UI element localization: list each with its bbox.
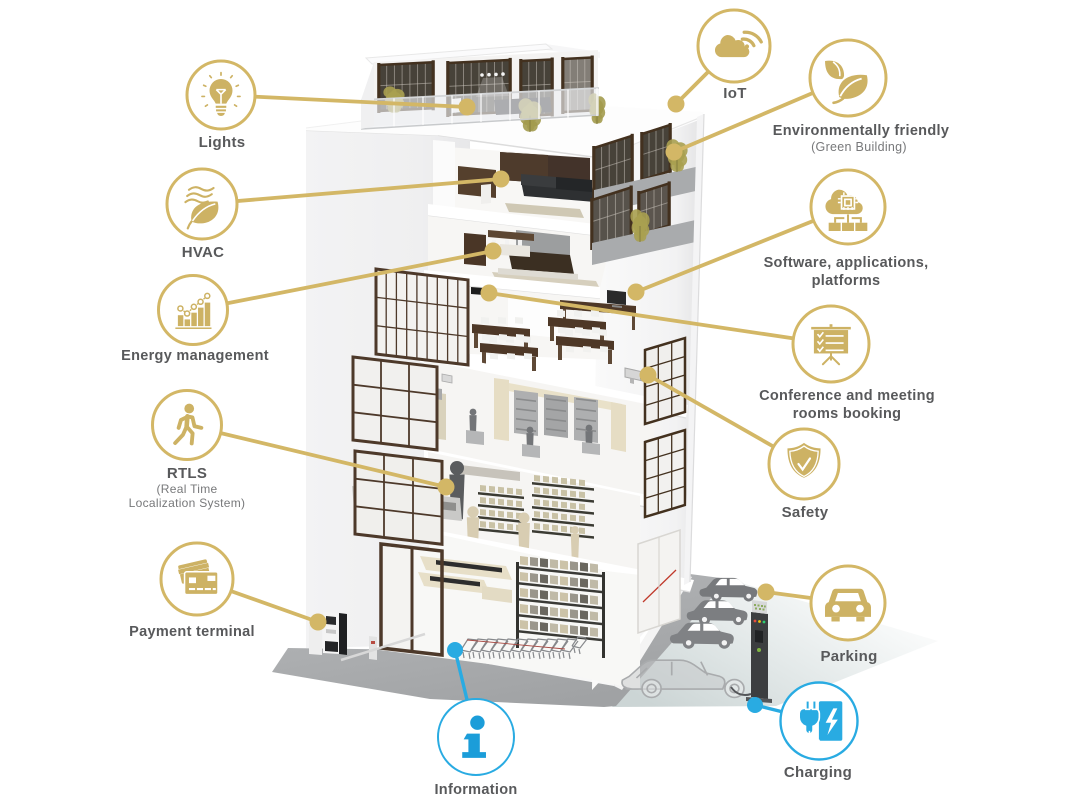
svg-text:HVAC: HVAC: [182, 244, 225, 261]
svg-text:Energy management: Energy management: [121, 348, 269, 364]
svg-text:rooms booking: rooms booking: [793, 406, 902, 422]
svg-text:Lights: Lights: [199, 134, 246, 151]
svg-text:Charging: Charging: [784, 764, 852, 781]
svg-text:IoT: IoT: [723, 85, 746, 102]
svg-text:Information: Information: [434, 782, 517, 798]
svg-text:Conference and meeting: Conference and meeting: [759, 388, 935, 404]
svg-text:Safety: Safety: [782, 504, 829, 521]
svg-text:(Real Time: (Real Time: [156, 482, 217, 496]
svg-text:(Green Building): (Green Building): [811, 140, 907, 154]
svg-text:RTLS: RTLS: [167, 465, 207, 482]
svg-text:Parking: Parking: [820, 648, 877, 665]
svg-text:Payment terminal: Payment terminal: [129, 624, 255, 640]
svg-text:Localization System): Localization System): [129, 496, 246, 510]
svg-text:platforms: platforms: [812, 273, 881, 289]
svg-text:Environmentally friendly: Environmentally friendly: [773, 123, 949, 139]
svg-text:Software, applications,: Software, applications,: [764, 255, 929, 271]
